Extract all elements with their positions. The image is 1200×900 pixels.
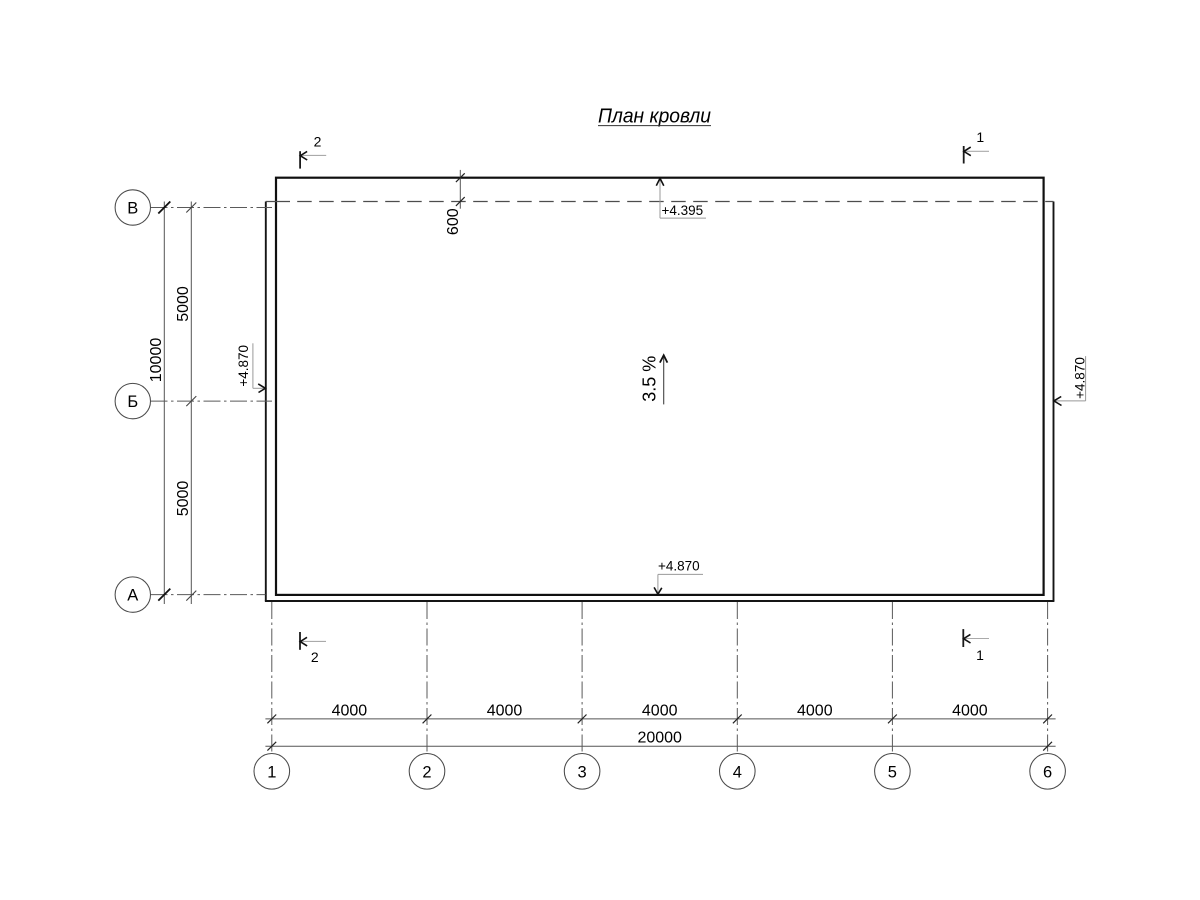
svg-text:4000: 4000: [332, 703, 368, 720]
svg-text:3.5 %: 3.5 %: [639, 356, 659, 402]
svg-text:4000: 4000: [952, 703, 988, 720]
svg-text:5000: 5000: [175, 286, 192, 322]
svg-text:4000: 4000: [487, 703, 523, 720]
svg-text:1: 1: [267, 763, 276, 781]
svg-text:6: 6: [1043, 763, 1052, 781]
svg-text:2: 2: [422, 763, 431, 781]
svg-text:+4.870: +4.870: [236, 345, 251, 387]
svg-text:В: В: [127, 200, 138, 218]
svg-text:4000: 4000: [642, 703, 678, 720]
svg-text:4: 4: [733, 763, 742, 781]
svg-text:+4.870: +4.870: [1072, 357, 1087, 399]
svg-text:+4.395: +4.395: [661, 203, 703, 218]
svg-text:5000: 5000: [175, 481, 192, 517]
svg-text:2: 2: [314, 133, 322, 149]
svg-text:3: 3: [578, 763, 587, 781]
svg-text:План кровли: План кровли: [598, 106, 711, 128]
svg-text:+4.870: +4.870: [658, 558, 700, 573]
svg-text:600: 600: [445, 208, 462, 235]
svg-text:10000: 10000: [148, 338, 165, 383]
svg-text:1: 1: [976, 129, 984, 145]
svg-text:4000: 4000: [797, 703, 833, 720]
svg-text:5: 5: [888, 763, 897, 781]
svg-text:Б: Б: [127, 393, 138, 411]
svg-text:2: 2: [311, 649, 319, 665]
svg-text:А: А: [127, 587, 138, 605]
svg-text:1: 1: [976, 647, 984, 663]
svg-text:20000: 20000: [637, 730, 682, 747]
